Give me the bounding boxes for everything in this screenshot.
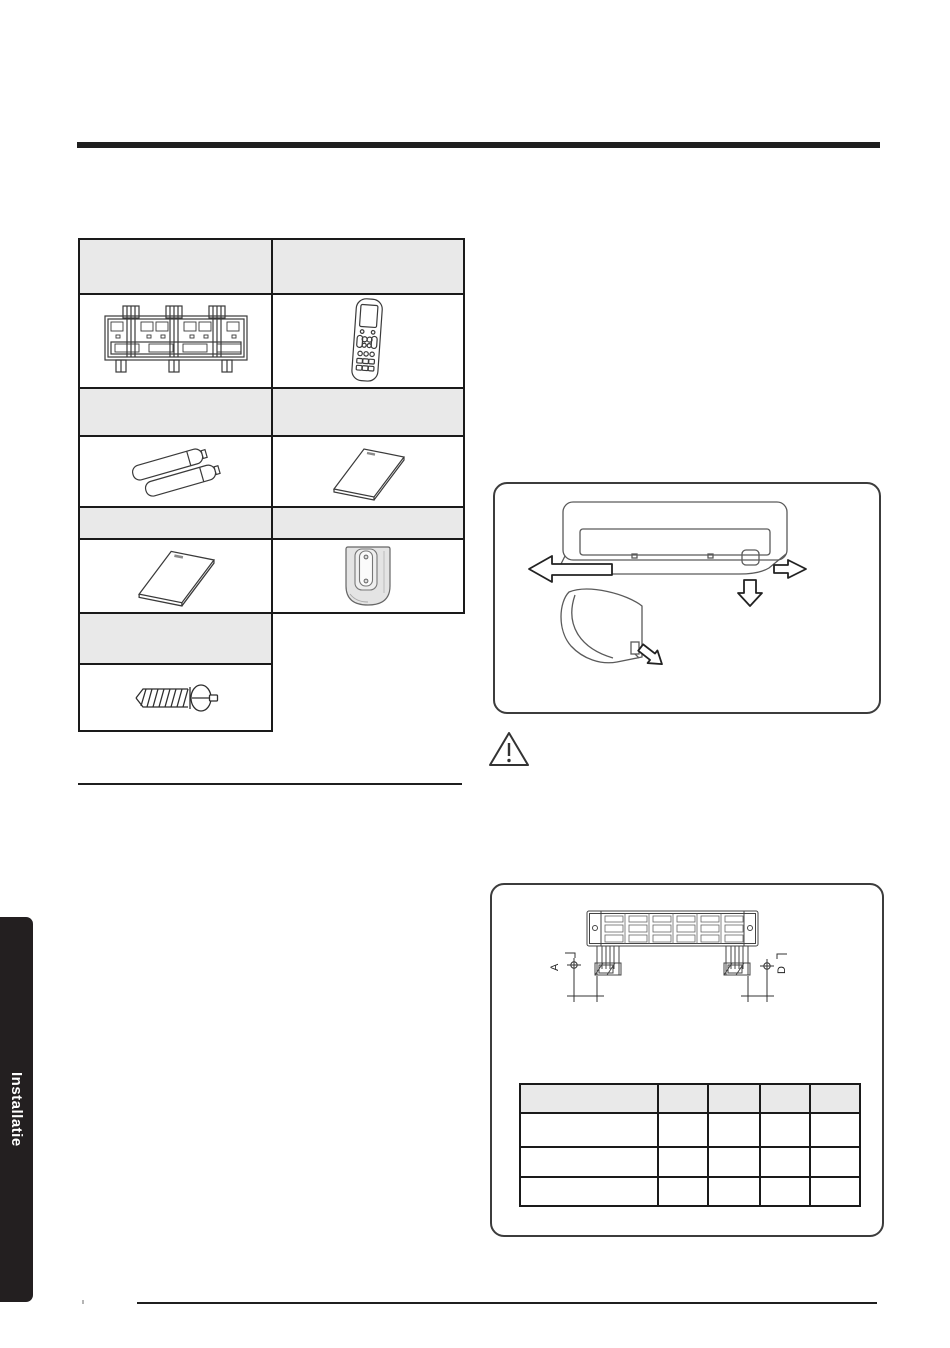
table-row	[79, 539, 464, 613]
arrow-diagonal-icon	[636, 641, 667, 670]
manual-image	[326, 443, 411, 501]
table-row	[79, 664, 464, 731]
accessory-header-cell	[79, 388, 272, 436]
sidebar-tab-label: Installatie	[8, 1072, 25, 1147]
header-rule	[77, 142, 880, 148]
screw-image	[131, 677, 221, 719]
dimension-cell	[760, 1113, 810, 1147]
dimension-cell	[658, 1113, 708, 1147]
section-divider	[78, 783, 462, 785]
accessory-image-cell	[79, 539, 272, 613]
arrow-down-icon	[738, 580, 762, 606]
table-row	[520, 1113, 860, 1147]
dimension-label-a: A	[549, 963, 561, 971]
table-row	[520, 1084, 860, 1113]
remote-control-image	[351, 297, 385, 385]
installation-plate-image	[101, 302, 251, 380]
accessory-header-cell	[79, 613, 272, 664]
dimension-header-cell	[520, 1084, 658, 1113]
dimension-cell	[520, 1177, 658, 1206]
dimension-label-d: D	[776, 966, 788, 974]
mount-hole-marker-left	[565, 953, 581, 972]
accessory-image-cell	[272, 436, 464, 507]
table-row	[520, 1177, 860, 1206]
accessory-header-cell	[79, 507, 272, 539]
dimension-lines	[567, 972, 774, 1002]
accessory-header-cell	[79, 239, 272, 294]
dimension-cell	[708, 1177, 760, 1206]
manual-image	[130, 545, 222, 607]
panel-removal-figure-box	[493, 482, 881, 714]
accessory-image-cell	[272, 294, 464, 388]
accessory-image-cell	[79, 294, 272, 388]
batteries-image	[122, 441, 230, 503]
dimension-cell	[810, 1177, 860, 1206]
dimension-header-cell	[810, 1084, 860, 1113]
dimension-cell	[810, 1113, 860, 1147]
table-row	[79, 294, 464, 388]
sidebar-tab-installatie: Installatie	[0, 917, 33, 1302]
dimension-cell	[708, 1147, 760, 1177]
dimension-cell	[760, 1177, 810, 1206]
dimension-header-cell	[658, 1084, 708, 1113]
dimension-cell	[520, 1147, 658, 1177]
accessory-image-cell	[79, 436, 272, 507]
dimension-cell	[658, 1147, 708, 1177]
dimension-header-cell	[760, 1084, 810, 1113]
mounting-plate-figure: A D	[495, 895, 875, 1025]
mounting-figure-box: A D	[490, 883, 884, 1237]
table-row	[79, 388, 464, 436]
remote-holder-image	[341, 544, 395, 608]
dimension-cell	[708, 1113, 760, 1147]
warning-triangle-icon	[487, 730, 531, 768]
accessory-header-cell	[272, 388, 464, 436]
dimension-cell	[520, 1113, 658, 1147]
accessories-table	[78, 238, 465, 732]
table-row	[79, 613, 464, 664]
accessory-image-cell	[272, 539, 464, 613]
accessory-header-cell	[272, 507, 464, 539]
table-row	[79, 436, 464, 507]
manual-page: A D	[0, 0, 950, 1348]
dimension-table	[519, 1083, 861, 1207]
page-number-mark	[82, 1300, 84, 1304]
table-row	[79, 239, 464, 294]
dimension-cell	[810, 1147, 860, 1177]
accessory-image-cell	[79, 664, 272, 731]
empty-cell	[272, 613, 464, 664]
dimension-cell	[658, 1177, 708, 1206]
table-row	[520, 1147, 860, 1177]
arrow-right-icon	[774, 560, 806, 578]
table-row	[79, 507, 464, 539]
footer-rule	[137, 1302, 877, 1304]
accessory-header-cell	[272, 239, 464, 294]
empty-cell	[272, 664, 464, 731]
dimension-header-cell	[708, 1084, 760, 1113]
dimension-cell	[760, 1147, 810, 1177]
panel-removal-figure	[495, 484, 875, 708]
